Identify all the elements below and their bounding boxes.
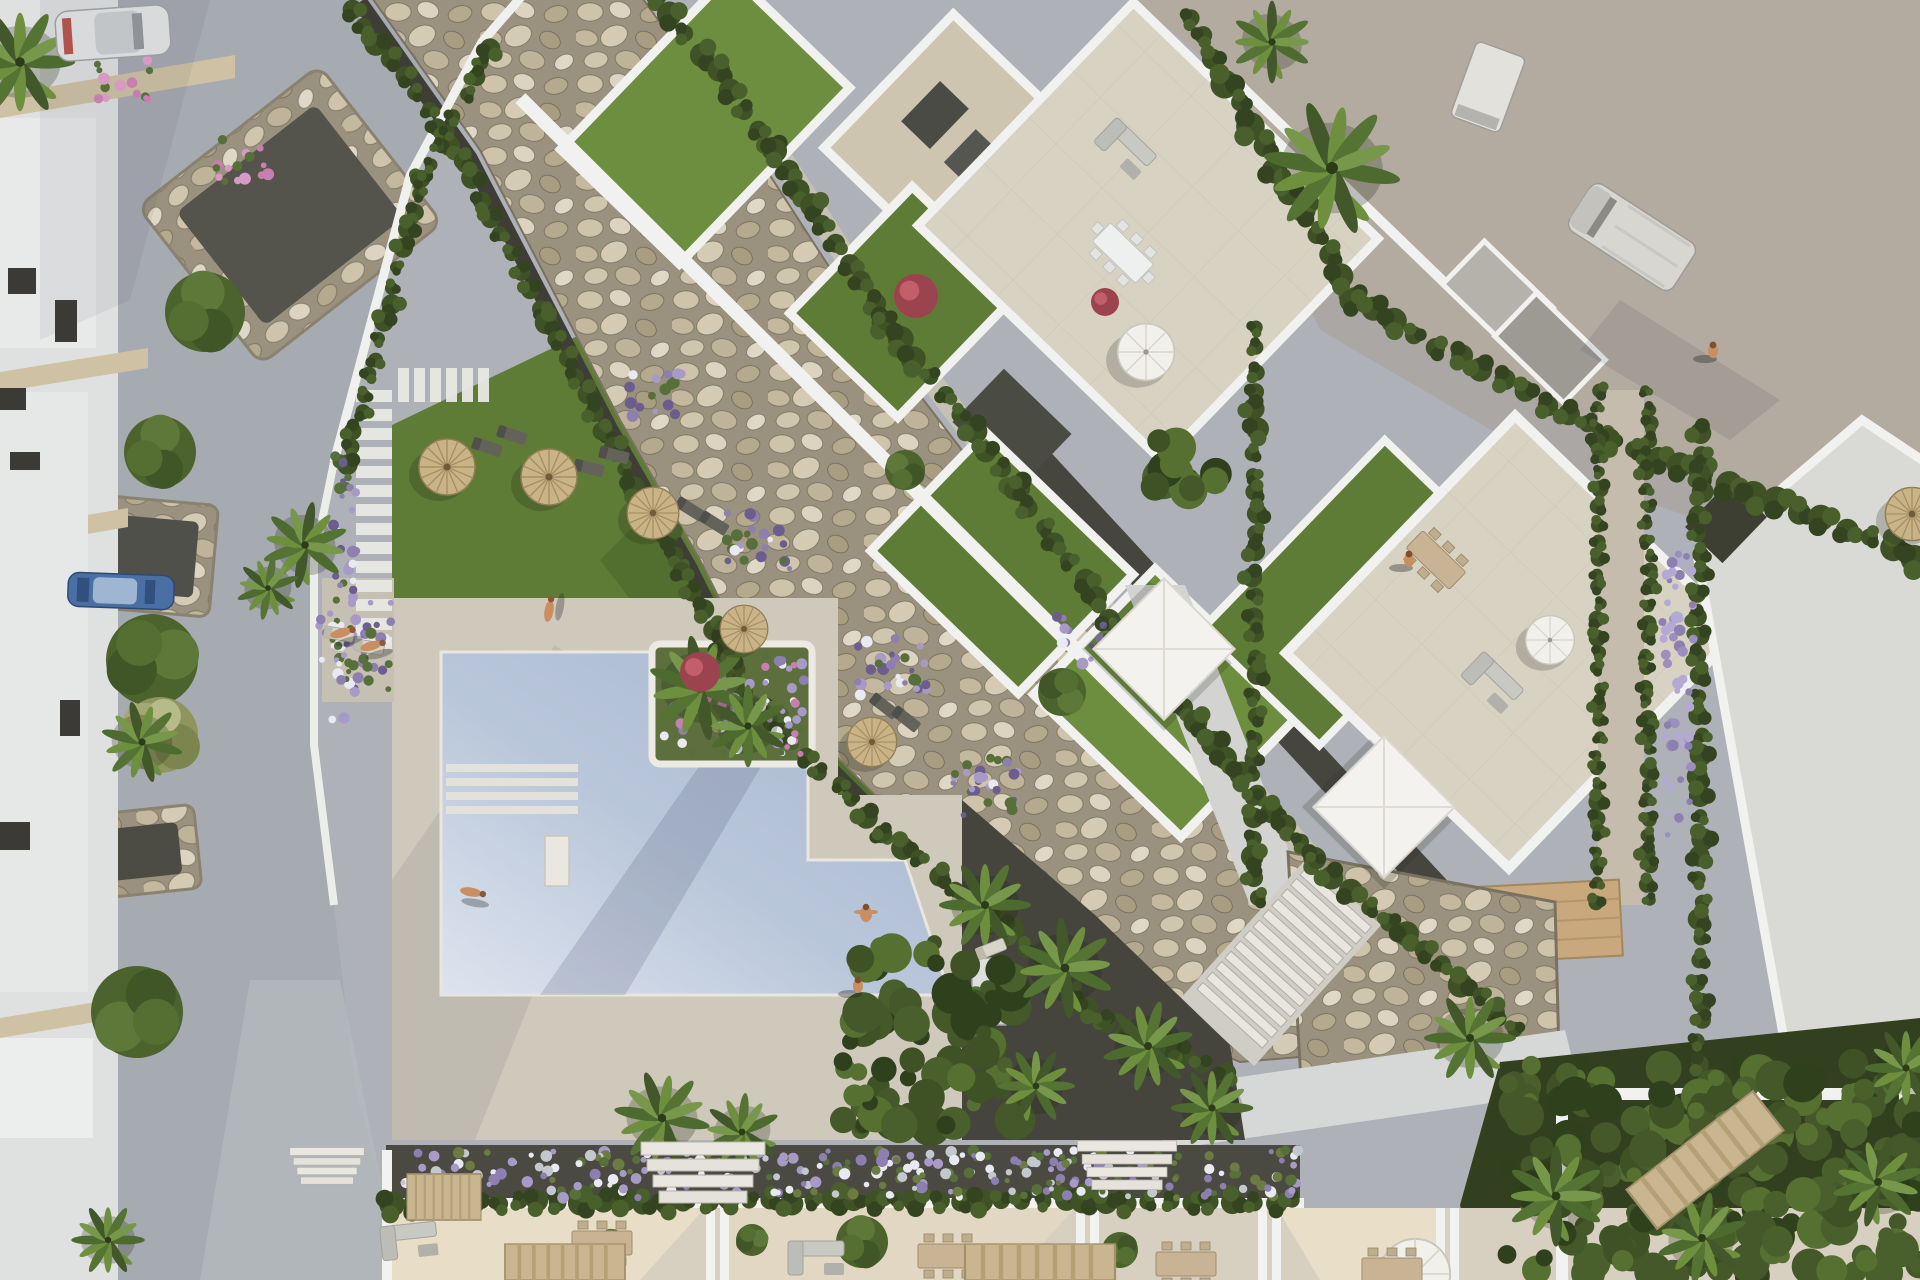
- flower-cluster: [332, 573, 339, 580]
- flower-cluster: [350, 614, 361, 625]
- flower-cluster: [353, 672, 364, 683]
- flower-cluster: [866, 664, 876, 674]
- flower-cluster: [1685, 688, 1692, 695]
- flower-cluster: [1687, 566, 1696, 575]
- flower-cluster: [1006, 1169, 1012, 1175]
- flower-cluster: [1264, 1184, 1271, 1191]
- shrub: [842, 992, 883, 1033]
- dining-table-icon: [1362, 1248, 1422, 1280]
- walkway-slat: [356, 542, 392, 554]
- flower-cluster: [993, 786, 1001, 794]
- flower-cluster: [670, 409, 680, 419]
- flower-cluster: [884, 682, 892, 690]
- flower-cluster: [758, 529, 769, 540]
- flower-cluster: [96, 67, 102, 73]
- flower-cluster: [746, 538, 758, 550]
- flower-cluster: [854, 678, 861, 685]
- shrub: [1708, 1070, 1724, 1086]
- flower-cluster: [961, 812, 967, 818]
- flower-cluster: [663, 400, 674, 411]
- flower-cluster: [418, 1164, 426, 1172]
- flower-cluster: [1036, 1153, 1044, 1161]
- flower-cluster: [641, 1157, 647, 1163]
- flower-cluster: [607, 1183, 612, 1188]
- flower-cluster: [632, 1156, 640, 1164]
- flower-cluster: [1668, 740, 1679, 751]
- flower-cluster: [688, 750, 694, 756]
- flower-cluster: [627, 410, 639, 422]
- shrub: [900, 1047, 925, 1072]
- flower-cluster: [1172, 1160, 1178, 1166]
- flower-cluster: [856, 1155, 867, 1166]
- shrub: [893, 1005, 930, 1042]
- flower-cluster: [339, 493, 344, 498]
- flower-cluster: [953, 1187, 963, 1197]
- flower-cluster: [634, 1194, 641, 1201]
- flower-cluster: [979, 773, 988, 782]
- flower-cluster: [257, 145, 264, 152]
- shrub: [834, 1052, 853, 1071]
- shrub: [976, 1025, 991, 1040]
- flower-cluster: [1678, 646, 1688, 656]
- flower-cluster: [879, 1182, 886, 1189]
- flower-cluster: [1220, 1183, 1227, 1190]
- flower-cluster: [720, 749, 728, 757]
- flower-cluster: [784, 744, 790, 750]
- flower-cluster: [1674, 813, 1684, 823]
- shrub: [985, 990, 1000, 1005]
- flower-cluster: [786, 665, 792, 671]
- flower-cluster: [1663, 659, 1672, 668]
- flower-cluster: [1005, 1178, 1010, 1183]
- walkway-slat: [356, 599, 392, 611]
- flower-cluster: [949, 1155, 959, 1165]
- flower-cluster: [744, 531, 751, 538]
- flower-cluster: [926, 1150, 935, 1159]
- walkway-slat: [356, 466, 392, 478]
- flower-cluster: [762, 1155, 768, 1161]
- shrub: [846, 945, 874, 973]
- flower-cluster: [1219, 1171, 1225, 1177]
- flower-cluster: [258, 171, 266, 179]
- flower-cluster: [344, 474, 352, 482]
- flower-cluster: [1689, 601, 1696, 608]
- flower-cluster: [327, 610, 333, 616]
- flower-cluster: [316, 615, 326, 625]
- flower-cluster: [1269, 1149, 1274, 1154]
- shrub: [953, 991, 984, 1022]
- flower-cluster: [143, 95, 149, 101]
- flower-cluster: [628, 370, 637, 379]
- flower-cluster: [351, 488, 360, 497]
- flower-cluster: [779, 750, 784, 755]
- flower-cluster: [861, 636, 873, 648]
- pool-platform: [545, 836, 569, 886]
- flowering-shrub-highlight: [685, 658, 703, 676]
- flower-cluster: [1173, 1194, 1180, 1201]
- flower-cluster: [1201, 1192, 1209, 1200]
- flower-cluster: [1172, 1176, 1178, 1182]
- shrub: [1584, 1084, 1622, 1122]
- flower-cluster: [1686, 765, 1691, 770]
- shrub: [1816, 1108, 1833, 1125]
- flower-cluster: [366, 628, 377, 639]
- flower-cluster: [773, 525, 785, 537]
- flower-cluster: [1175, 1153, 1182, 1160]
- flower-cluster: [1273, 1172, 1283, 1182]
- flower-cluster: [1279, 1158, 1285, 1164]
- flower-cluster: [94, 61, 101, 68]
- flower-cluster: [1204, 1175, 1212, 1183]
- flower-cluster: [724, 510, 731, 517]
- flower-cluster: [1285, 1175, 1296, 1186]
- flower-cluster: [94, 94, 103, 103]
- shrub: [1147, 429, 1170, 452]
- flower-cluster: [659, 384, 671, 396]
- flower-cluster: [221, 178, 228, 185]
- flower-cluster: [986, 754, 995, 763]
- flower-cluster: [886, 1191, 894, 1199]
- flower-cluster: [773, 1173, 780, 1180]
- flower-cluster: [487, 1182, 492, 1187]
- flower-cluster: [776, 1190, 781, 1195]
- flower-cluster: [590, 1183, 595, 1188]
- walkway-slat: [398, 368, 409, 402]
- flower-cluster: [900, 653, 909, 662]
- flower-cluster: [374, 622, 380, 628]
- flower-cluster: [338, 712, 350, 724]
- shrub: [1505, 1097, 1544, 1136]
- flower-cluster: [1049, 1186, 1054, 1191]
- flower-cluster: [1661, 625, 1671, 635]
- flower-cluster: [624, 382, 635, 393]
- flower-cluster: [627, 1169, 633, 1175]
- flower-cluster: [98, 73, 110, 85]
- flower-cluster: [907, 1152, 915, 1160]
- flower-cluster: [903, 1164, 912, 1173]
- shrub: [1783, 1064, 1821, 1102]
- flower-cluster: [994, 756, 1002, 764]
- flower-cluster: [385, 660, 393, 668]
- walkway-slat: [446, 368, 457, 402]
- flower-cluster: [762, 544, 769, 551]
- flower-cluster: [1211, 1190, 1217, 1196]
- walkway-slat: [430, 368, 441, 402]
- flower-cluster: [766, 1174, 772, 1180]
- flower-cluster: [908, 674, 920, 686]
- flower-cluster: [233, 161, 243, 171]
- flower-cluster: [465, 1161, 475, 1171]
- walkway-slat: [478, 368, 489, 402]
- flower-cluster: [1015, 1159, 1021, 1165]
- flower-cluster: [871, 1166, 880, 1175]
- flower-cluster: [218, 135, 227, 144]
- shrub: [1591, 1122, 1622, 1153]
- flower-cluster: [1678, 675, 1687, 684]
- flower-cluster: [1671, 611, 1683, 623]
- flower-cluster: [802, 1168, 809, 1175]
- flower-cluster: [780, 540, 788, 548]
- shrub: [950, 950, 980, 980]
- walkway-slat: [356, 561, 392, 573]
- shrub: [1536, 1249, 1553, 1266]
- flower-cluster: [780, 557, 787, 564]
- flower-cluster: [115, 80, 127, 92]
- scene-svg: [0, 0, 1920, 1280]
- flower-cluster: [1005, 797, 1017, 809]
- flower-cluster: [1675, 551, 1682, 558]
- pergola-icon: [505, 1244, 625, 1280]
- flower-cluster: [1003, 758, 1012, 767]
- flower-cluster: [924, 1158, 933, 1167]
- flower-cluster: [913, 685, 920, 692]
- flower-cluster: [933, 1159, 943, 1169]
- flower-cluster: [672, 368, 683, 379]
- flower-cluster: [912, 1186, 917, 1191]
- flower-cluster: [960, 1152, 966, 1158]
- flower-cluster: [569, 1188, 581, 1200]
- flower-cluster: [653, 409, 658, 414]
- flower-cluster: [594, 1179, 603, 1188]
- flower-cluster: [916, 1182, 928, 1194]
- flower-cluster: [576, 1160, 583, 1167]
- flower-cluster: [1659, 618, 1667, 626]
- flower-cluster: [328, 716, 336, 724]
- shrub: [1838, 1049, 1868, 1079]
- flower-cluster: [337, 582, 343, 588]
- flower-cluster: [1205, 1151, 1214, 1160]
- flower-cluster: [1672, 583, 1678, 589]
- flower-cluster: [319, 657, 325, 663]
- flower-cluster: [625, 397, 637, 409]
- flower-cluster: [963, 769, 970, 776]
- flower-cluster: [1046, 1180, 1052, 1186]
- flower-cluster: [261, 162, 267, 168]
- flower-cluster: [133, 90, 141, 98]
- flower-cluster: [619, 1184, 628, 1193]
- flower-cluster: [549, 1177, 555, 1183]
- flower-cluster: [1125, 1193, 1131, 1199]
- flower-cluster: [817, 1163, 823, 1169]
- flower-cluster: [1685, 742, 1693, 750]
- flower-cluster: [414, 1149, 423, 1158]
- flower-cluster: [791, 730, 798, 737]
- shrub: [1741, 1189, 1766, 1214]
- shrub: [1884, 1232, 1919, 1267]
- flower-cluster: [664, 370, 672, 378]
- flower-cluster: [1048, 1166, 1054, 1172]
- flower-cluster: [891, 634, 900, 643]
- flower-cluster: [875, 660, 883, 668]
- flower-cluster: [976, 1152, 986, 1162]
- flower-cluster: [127, 77, 138, 88]
- flower-cluster: [1077, 658, 1089, 670]
- flower-cluster: [778, 656, 787, 665]
- flower-cluster: [787, 566, 792, 571]
- flower-cluster: [677, 738, 687, 748]
- flower-cluster: [756, 551, 767, 562]
- flower-cluster: [547, 1186, 557, 1196]
- flower-cluster: [1686, 799, 1692, 805]
- flower-cluster: [984, 798, 993, 807]
- shrub: [1179, 475, 1205, 501]
- shrub: [937, 1116, 956, 1135]
- flower-cluster: [730, 545, 741, 556]
- flower-cluster: [1664, 599, 1671, 606]
- flower-cluster: [940, 1168, 951, 1179]
- flower-cluster: [864, 1182, 870, 1188]
- flower-cluster: [1288, 1187, 1295, 1194]
- flower-cluster: [991, 1177, 999, 1185]
- flower-cluster: [1204, 1164, 1214, 1174]
- flower-cluster: [909, 668, 914, 673]
- flower-cluster: [346, 669, 351, 674]
- shrub: [1688, 1102, 1705, 1119]
- flower-cluster: [761, 663, 769, 671]
- walkway-slat: [356, 523, 392, 535]
- flower-cluster: [368, 600, 374, 606]
- flower-cluster: [1684, 732, 1694, 742]
- flower-cluster: [1663, 777, 1670, 784]
- flower-cluster: [349, 560, 357, 568]
- flowering-shrub-highlight: [1095, 292, 1108, 305]
- flower-cluster: [245, 152, 255, 162]
- flower-cluster: [1165, 1183, 1173, 1191]
- flower-cluster: [333, 597, 340, 604]
- flower-cluster: [796, 658, 807, 669]
- flower-cluster: [876, 1155, 888, 1167]
- flower-cluster: [799, 675, 809, 685]
- flower-cluster: [1032, 1184, 1043, 1195]
- aerial-render-image: Aerial top-down 3D architectural renderi…: [0, 0, 1920, 1280]
- shrub: [1854, 1079, 1875, 1100]
- flower-cluster: [1664, 721, 1671, 728]
- walkway-slat: [356, 504, 392, 516]
- flower-cluster: [1062, 1190, 1072, 1200]
- flower-cluster: [1689, 635, 1698, 644]
- shrub: [1201, 467, 1228, 494]
- flower-cluster: [336, 675, 346, 685]
- flower-cluster: [1061, 1160, 1069, 1168]
- shrub: [927, 955, 944, 972]
- flower-cluster: [889, 651, 895, 657]
- flower-cluster: [146, 67, 153, 74]
- shrub: [857, 1085, 874, 1102]
- shrub: [947, 1063, 975, 1091]
- flower-cluster: [1685, 702, 1694, 711]
- flower-cluster: [451, 1164, 459, 1172]
- shrub: [1786, 1177, 1821, 1212]
- flower-cluster: [348, 660, 358, 670]
- shrub: [908, 1079, 944, 1115]
- flower-cluster: [744, 508, 755, 519]
- shrub: [1530, 1136, 1553, 1159]
- flower-cluster: [740, 556, 749, 565]
- flower-cluster: [1281, 1146, 1291, 1156]
- flower-cluster: [557, 1192, 569, 1204]
- flower-cluster: [797, 707, 806, 716]
- shrub: [985, 955, 1015, 985]
- flower-cluster: [1008, 1188, 1016, 1196]
- flower-cluster: [801, 1181, 807, 1187]
- flower-cluster: [1022, 1168, 1032, 1178]
- flower-cluster: [385, 686, 391, 692]
- flower-cluster: [971, 1153, 976, 1158]
- flower-cluster: [341, 652, 347, 658]
- flower-cluster: [1076, 1187, 1085, 1196]
- flower-cluster: [762, 652, 769, 659]
- flower-cluster: [1662, 570, 1672, 580]
- flower-cluster: [791, 699, 800, 708]
- shrub: [1522, 1056, 1541, 1075]
- flower-cluster: [826, 1149, 831, 1154]
- flower-cluster: [429, 1151, 440, 1162]
- flower-cluster: [786, 1186, 794, 1194]
- flower-cluster: [845, 1159, 851, 1165]
- flower-cluster: [363, 675, 373, 685]
- flower-cluster: [886, 660, 896, 670]
- pergola-icon: [965, 1244, 1115, 1280]
- flower-cluster: [917, 642, 924, 649]
- walkway-slat: [356, 485, 392, 497]
- flower-cluster: [239, 173, 251, 185]
- shrub: [1855, 1250, 1877, 1272]
- flower-cluster: [338, 458, 347, 467]
- flower-cluster: [921, 680, 930, 689]
- flower-cluster: [508, 1158, 517, 1167]
- flower-cluster: [767, 537, 773, 543]
- flower-cluster: [855, 689, 866, 700]
- flower-cluster: [362, 662, 372, 672]
- shrub: [965, 1035, 1000, 1070]
- flower-cluster: [848, 1189, 859, 1200]
- flower-cluster: [920, 659, 928, 667]
- flower-cluster: [1290, 1162, 1297, 1169]
- walkway-slat: [462, 368, 473, 402]
- flower-cluster: [793, 1189, 802, 1198]
- flower-cluster: [1670, 719, 1680, 729]
- dining-table-icon: [1156, 1242, 1216, 1280]
- flower-cluster: [1056, 1180, 1061, 1185]
- walkway-slat: [356, 447, 392, 459]
- walkway-slat: [414, 368, 425, 402]
- flower-cluster: [722, 535, 732, 545]
- flower-cluster: [388, 600, 394, 606]
- shrub: [881, 1107, 918, 1144]
- flower-cluster: [1677, 573, 1684, 580]
- flower-cluster: [779, 1152, 788, 1161]
- flower-cluster: [143, 56, 153, 66]
- shrub: [1757, 1144, 1788, 1175]
- shrub: [1763, 1195, 1778, 1210]
- flower-cluster: [1674, 625, 1685, 636]
- flower-cluster: [213, 164, 221, 172]
- flower-cluster: [1683, 553, 1690, 560]
- blue-car-icon: [67, 572, 174, 610]
- shrub: [1762, 1226, 1793, 1257]
- flower-cluster: [893, 1157, 900, 1164]
- flower-cluster: [225, 165, 232, 172]
- flower-cluster: [1070, 1179, 1079, 1188]
- flower-cluster: [1665, 811, 1670, 816]
- flower-cluster: [1674, 732, 1683, 741]
- flower-cluster: [969, 786, 975, 792]
- flower-cluster: [1677, 776, 1684, 783]
- flower-cluster: [950, 1174, 958, 1182]
- shrub: [871, 1057, 897, 1083]
- flower-cluster: [660, 731, 669, 740]
- flower-cluster: [336, 661, 342, 667]
